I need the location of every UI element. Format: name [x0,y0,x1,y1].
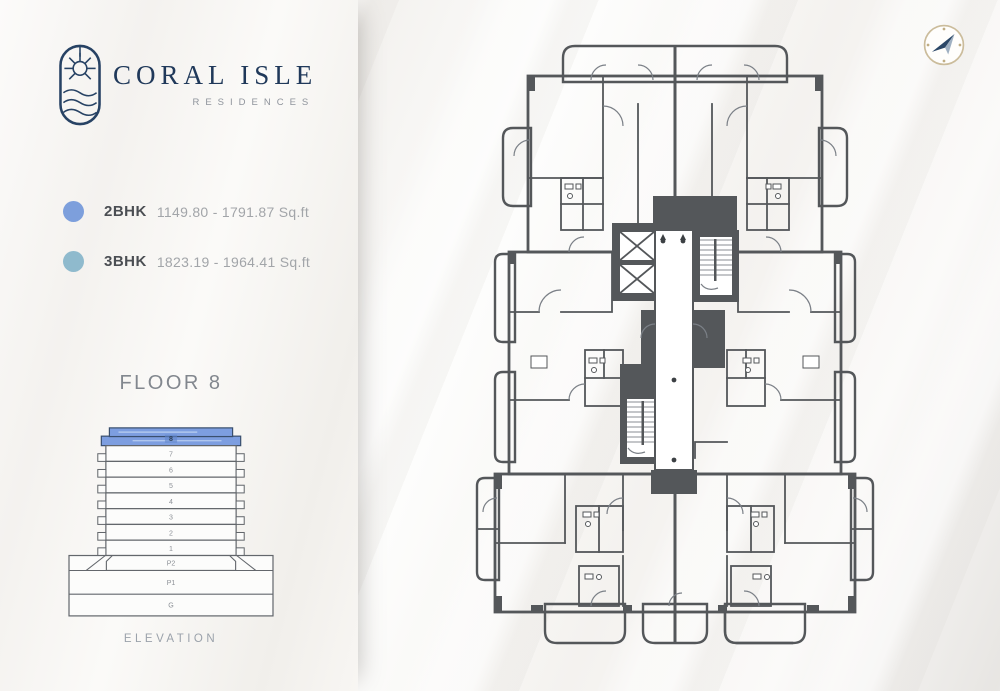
page: CORAL ISLE RESIDENCES 2BHK 1149.80 - 179… [0,0,1000,691]
elevator-x-icon [619,264,655,294]
elevation-floor-row-6[interactable]: 6 [98,461,244,477]
staircase-icon [699,236,733,296]
elevation-floor-row-1[interactable]: 1 [98,540,244,555]
compass-icon [923,24,965,66]
elevation-floor-label: P1 [167,580,176,587]
elevation-floor-label: 8 [169,436,173,443]
balcony [835,372,855,462]
legend-range: 1149.80 - 1791.87 Sq.ft [157,204,309,220]
balcony [835,254,855,342]
elevation-floor-label: 1 [169,546,173,553]
brand-subtitle: RESIDENCES [113,97,317,108]
legend-color-2bhk [63,201,84,222]
elevator-x-icon [619,231,655,261]
elevation-diagram: 8 7 6 5 [68,427,274,619]
elevation-floor-label: G [168,602,173,609]
main-area [358,0,1000,691]
legend-label: 2BHK [104,203,147,220]
legend-label: 3BHK [104,253,147,270]
balcony [545,604,625,643]
sidebar: CORAL ISLE RESIDENCES 2BHK 1149.80 - 179… [0,0,358,691]
floor-plan [473,28,905,658]
core [612,196,739,494]
legend-item-2bhk: 2BHK 1149.80 - 1791.87 Sq.ft [63,201,310,222]
elevation-floor-label: 5 [169,483,173,490]
balcony [725,604,793,643]
balcony [725,604,805,643]
elevation-podium: P2 P1 G [69,556,273,616]
elevation-floor-row-3[interactable]: 3 [98,509,244,525]
floor-title: FLOOR 8 [66,372,276,395]
elevation-floor-label: 6 [169,467,173,474]
brand-name: CORAL ISLE [113,60,317,91]
elevation-floor-row-5[interactable]: 5 [98,477,244,493]
elevation-floor-row-2[interactable]: 2 [98,524,244,540]
corridor [655,230,693,470]
elevation-floor-label: 4 [169,499,173,506]
elevation-floor-row-7[interactable]: 7 [98,446,244,462]
elevation-floor-row-8[interactable]: 8 [101,428,240,446]
elevation-floor-label: 2 [169,530,173,537]
elevation-floor-row-4[interactable]: 4 [98,493,244,509]
elevation-floor-label: 3 [169,515,173,522]
brand-logo: CORAL ISLE RESIDENCES [58,44,317,126]
legend-range: 1823.19 - 1964.41 Sq.ft [157,254,310,270]
unit-legend: 2BHK 1149.80 - 1791.87 Sq.ft 3BHK 1823.1… [63,201,310,301]
entry-lobby [651,470,697,494]
legend-item-3bhk: 3BHK 1823.19 - 1964.41 Sq.ft [63,251,310,272]
floor-block: FLOOR 8 8 7 [66,372,276,645]
balcony [495,372,515,462]
legend-color-3bhk [63,251,84,272]
elevation-floor-label: 7 [169,452,173,459]
logo-emblem-icon [58,44,102,126]
elevation-floor-label: P2 [167,561,176,568]
elevation-caption: ELEVATION [66,633,276,645]
brand-text: CORAL ISLE RESIDENCES [113,44,317,108]
balcony [495,254,515,342]
